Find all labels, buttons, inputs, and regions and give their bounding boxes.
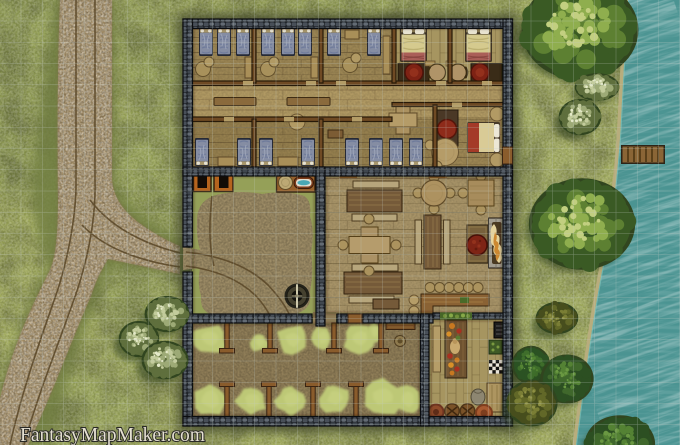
svg-text:FantasyMapMaker.com: FantasyMapMaker.com <box>20 424 205 445</box>
